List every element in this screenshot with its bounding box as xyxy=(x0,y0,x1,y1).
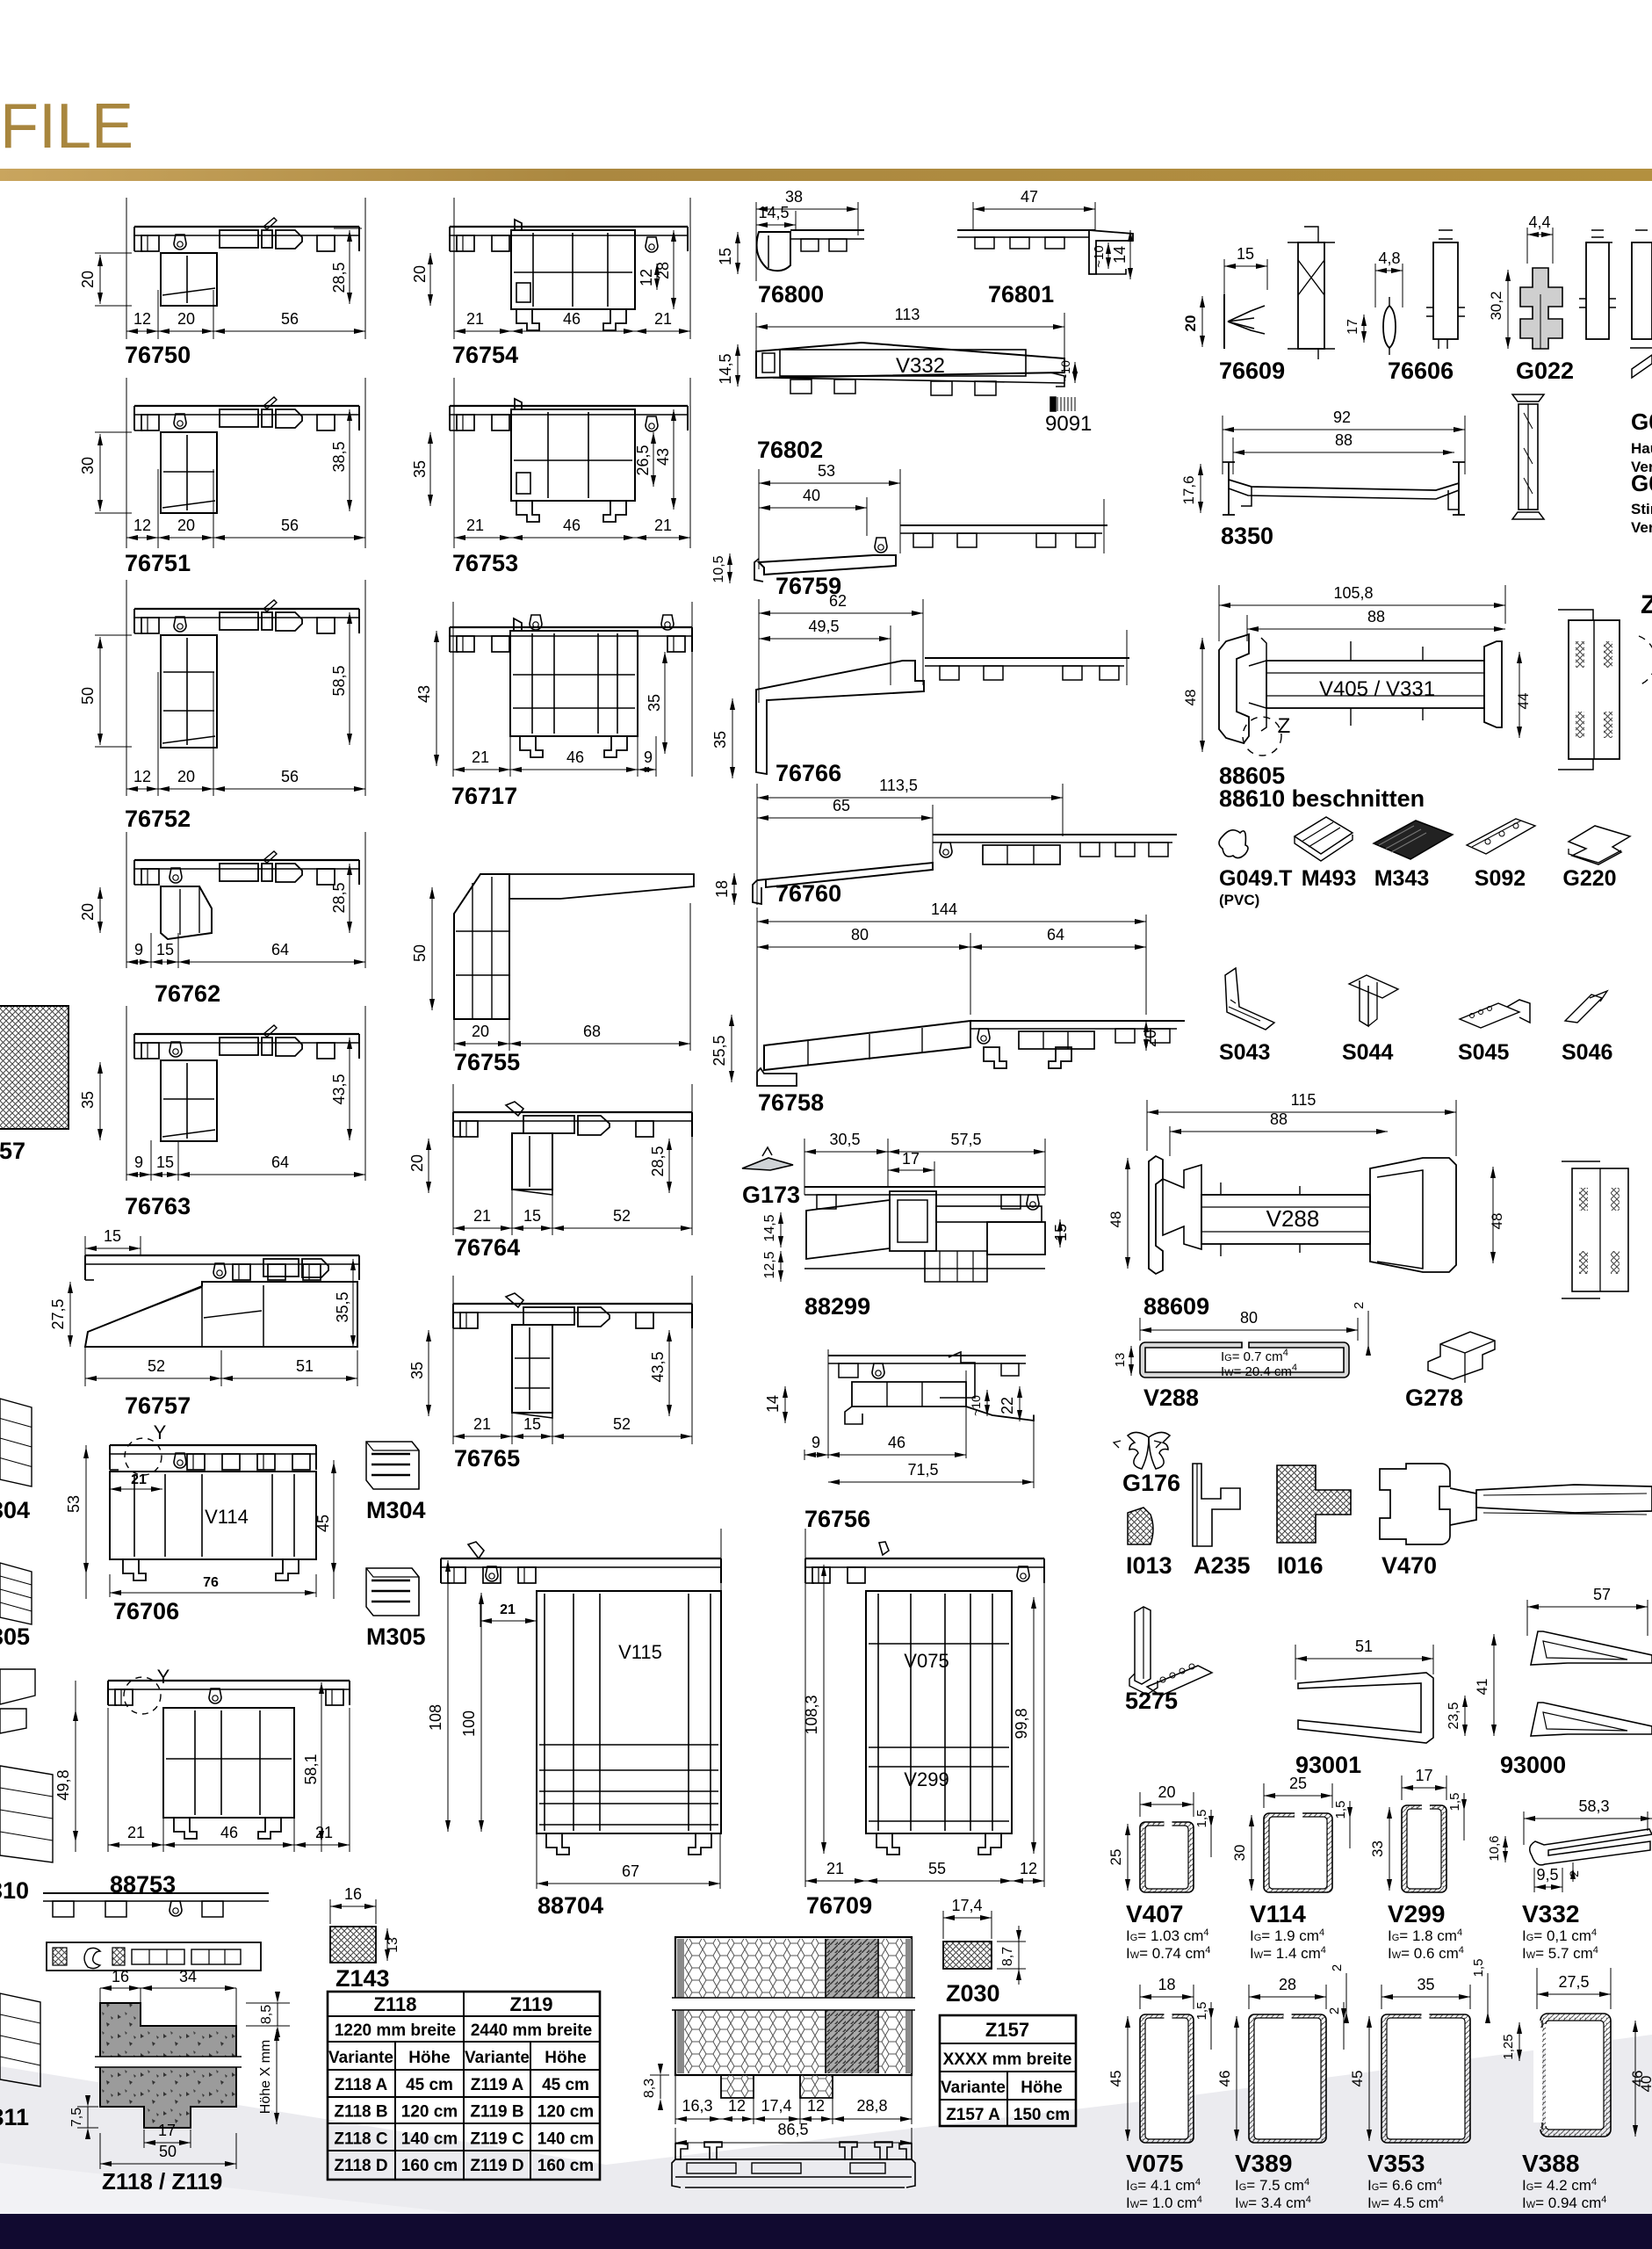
svg-text:105,8: 105,8 xyxy=(1333,584,1373,602)
svg-text:58,1: 58,1 xyxy=(302,1754,320,1784)
svg-text:I013: I013 xyxy=(1126,1552,1172,1579)
svg-text:5275: 5275 xyxy=(1125,1688,1178,1714)
svg-text:17: 17 xyxy=(902,1150,920,1168)
svg-text:21: 21 xyxy=(654,310,672,328)
svg-text:21: 21 xyxy=(500,1602,516,1617)
svg-text:53: 53 xyxy=(65,1495,83,1513)
svg-text:140 cm: 140 cm xyxy=(401,2130,458,2148)
svg-text:25: 25 xyxy=(1289,1775,1307,1792)
svg-text:20: 20 xyxy=(177,517,195,534)
svg-text:86,5: 86,5 xyxy=(777,2121,808,2138)
svg-text:17: 17 xyxy=(158,2122,176,2139)
svg-text:28,5: 28,5 xyxy=(330,882,348,913)
svg-text:7,5: 7,5 xyxy=(69,2108,84,2127)
svg-text:Höhe: Höhe xyxy=(1021,2079,1063,2097)
svg-text:8310: 8310 xyxy=(0,1877,29,1904)
svg-text:Höhe: Höhe xyxy=(545,2049,587,2067)
svg-text:76751: 76751 xyxy=(125,550,191,576)
svg-text:V299: V299 xyxy=(1388,1900,1445,1927)
svg-text:M305: M305 xyxy=(366,1623,426,1650)
svg-text:14: 14 xyxy=(1111,246,1129,264)
svg-text:IG= 1.9 cm4: IG= 1.9 cm4 xyxy=(1250,1927,1324,1944)
svg-text:V389: V389 xyxy=(1235,2150,1292,2177)
svg-text:144: 144 xyxy=(931,900,957,918)
svg-text:V288: V288 xyxy=(1266,1205,1320,1232)
svg-text:43: 43 xyxy=(654,448,672,466)
svg-text:76766: 76766 xyxy=(776,760,841,786)
svg-text:50: 50 xyxy=(79,687,97,705)
svg-text:52: 52 xyxy=(148,1357,165,1375)
svg-text:41: 41 xyxy=(1474,1679,1490,1696)
svg-text:44: 44 xyxy=(1515,693,1532,710)
svg-text:V470: V470 xyxy=(1381,1552,1437,1579)
svg-text:Z030: Z030 xyxy=(946,1980,1000,2007)
svg-text:14: 14 xyxy=(764,1395,782,1413)
svg-text:45 cm: 45 cm xyxy=(542,2076,589,2094)
svg-text:9: 9 xyxy=(134,941,143,958)
svg-text:113: 113 xyxy=(895,306,920,323)
svg-text:Z119 B: Z119 B xyxy=(470,2103,523,2122)
svg-text:88704: 88704 xyxy=(537,1892,603,1919)
svg-text:49,5: 49,5 xyxy=(808,618,839,635)
svg-text:27,5: 27,5 xyxy=(1558,1973,1589,1991)
svg-text:33: 33 xyxy=(1369,1840,1386,1857)
svg-text:46: 46 xyxy=(566,748,584,766)
svg-text:Z118 A: Z118 A xyxy=(335,2076,388,2094)
svg-text:76606: 76606 xyxy=(1388,358,1454,384)
svg-text:35: 35 xyxy=(408,1362,426,1379)
svg-text:Z119 D: Z119 D xyxy=(470,2157,523,2175)
svg-text:Z118 / Z119: Z118 / Z119 xyxy=(102,2168,222,2195)
svg-text:21: 21 xyxy=(473,1207,491,1225)
svg-text:48: 48 xyxy=(1182,690,1199,706)
svg-text:12: 12 xyxy=(133,768,151,785)
svg-text:80: 80 xyxy=(851,926,869,944)
svg-text:58,3: 58,3 xyxy=(1578,1797,1609,1815)
svg-text:55: 55 xyxy=(928,1860,946,1877)
svg-text:43,5: 43,5 xyxy=(330,1074,348,1104)
svg-text:27,5: 27,5 xyxy=(49,1298,67,1329)
svg-text:I016: I016 xyxy=(1277,1552,1324,1579)
svg-text:17: 17 xyxy=(1415,1767,1432,1784)
svg-text:V353: V353 xyxy=(1367,2150,1425,2177)
svg-text:V114: V114 xyxy=(205,1506,249,1528)
svg-text:Z143: Z143 xyxy=(335,1965,390,1992)
svg-text:76757: 76757 xyxy=(125,1392,191,1419)
svg-text:34: 34 xyxy=(179,1968,197,1985)
svg-text:Z119 A: Z119 A xyxy=(471,2076,524,2094)
svg-text:21: 21 xyxy=(466,517,484,534)
svg-text:71,5: 71,5 xyxy=(907,1461,938,1479)
svg-text:Z: Z xyxy=(1278,714,1291,738)
svg-text:17,6: 17,6 xyxy=(1180,475,1197,504)
svg-text:9: 9 xyxy=(812,1434,820,1451)
svg-text:76609: 76609 xyxy=(1219,358,1285,384)
svg-text:45: 45 xyxy=(1349,2071,1366,2087)
svg-text:93000: 93000 xyxy=(1500,1752,1566,1778)
svg-text:52: 52 xyxy=(613,1207,631,1225)
svg-text:43,5: 43,5 xyxy=(649,1351,667,1382)
svg-text:XXXX mm breite: XXXX mm breite xyxy=(943,2050,1072,2069)
svg-text:8311: 8311 xyxy=(0,2104,29,2130)
svg-text:76801: 76801 xyxy=(988,281,1054,307)
svg-text:100: 100 xyxy=(460,1710,478,1737)
svg-text:G173: G173 xyxy=(742,1182,800,1208)
svg-text:IW= 0.94 cm4: IW= 0.94 cm4 xyxy=(1522,2195,1606,2211)
svg-text:113,5: 113,5 xyxy=(879,777,918,794)
svg-text:35: 35 xyxy=(1417,1976,1434,1993)
svg-text:23,5: 23,5 xyxy=(1446,1702,1461,1729)
svg-text:20: 20 xyxy=(408,1154,426,1172)
svg-text:76709: 76709 xyxy=(806,1892,872,1919)
svg-text:21: 21 xyxy=(131,1472,147,1487)
svg-text:IG= 4.2 cm4: IG= 4.2 cm4 xyxy=(1522,2177,1597,2194)
svg-text:4,4: 4,4 xyxy=(1528,213,1550,231)
svg-text:64: 64 xyxy=(1047,926,1064,944)
svg-text:88: 88 xyxy=(1367,608,1385,626)
svg-text:30,5: 30,5 xyxy=(829,1131,860,1148)
svg-text:21: 21 xyxy=(127,1824,145,1841)
svg-text:28: 28 xyxy=(1279,1976,1296,1993)
svg-text:35: 35 xyxy=(646,694,663,712)
svg-text:2: 2 xyxy=(1327,2007,1342,2014)
svg-text:I057: I057 xyxy=(0,1138,25,1164)
svg-text:21: 21 xyxy=(472,748,489,766)
svg-text:M343: M343 xyxy=(1374,866,1430,891)
svg-text:V388: V388 xyxy=(1522,2150,1579,2177)
svg-text:Z157: Z157 xyxy=(985,2019,1029,2041)
svg-text:14,5: 14,5 xyxy=(717,353,734,384)
svg-text:21: 21 xyxy=(654,517,672,534)
svg-text:22: 22 xyxy=(999,1397,1016,1414)
svg-text:8350: 8350 xyxy=(1221,523,1273,549)
svg-text:V288: V288 xyxy=(1143,1385,1199,1411)
svg-text:56: 56 xyxy=(281,310,299,328)
svg-text:V075: V075 xyxy=(904,1650,949,1672)
svg-text:G278: G278 xyxy=(1405,1385,1463,1411)
svg-text:S092: S092 xyxy=(1475,866,1526,891)
svg-text:46: 46 xyxy=(220,1824,238,1841)
svg-text:12: 12 xyxy=(638,269,655,286)
svg-text:~10: ~10 xyxy=(969,1395,983,1416)
svg-text:M304: M304 xyxy=(0,1497,30,1523)
svg-text:18: 18 xyxy=(713,880,731,898)
svg-text:Z119 C: Z119 C xyxy=(470,2130,524,2148)
svg-text:1,5: 1,5 xyxy=(1333,1801,1348,1819)
svg-text:35: 35 xyxy=(79,1091,97,1109)
svg-text:25: 25 xyxy=(1107,1849,1124,1866)
svg-text:9,5: 9,5 xyxy=(1536,1866,1558,1884)
svg-text:150 cm: 150 cm xyxy=(1014,2106,1070,2124)
svg-text:49,8: 49,8 xyxy=(54,1769,72,1800)
svg-text:76763: 76763 xyxy=(125,1193,191,1219)
svg-text:IG= 7.5 cm4: IG= 7.5 cm4 xyxy=(1235,2177,1309,2194)
svg-text:~10: ~10 xyxy=(1058,360,1072,381)
svg-text:108,3: 108,3 xyxy=(803,1695,820,1734)
svg-text:64: 64 xyxy=(271,941,289,958)
svg-text:Z118: Z118 xyxy=(374,1993,417,2015)
svg-text:140 cm: 140 cm xyxy=(537,2130,594,2148)
svg-text:160 cm: 160 cm xyxy=(537,2157,594,2175)
svg-text:50: 50 xyxy=(159,2143,177,2160)
svg-text:62: 62 xyxy=(829,592,847,610)
svg-text:18: 18 xyxy=(1158,1976,1175,1993)
svg-text:15: 15 xyxy=(717,248,734,265)
svg-text:52: 52 xyxy=(613,1415,631,1433)
svg-text:15: 15 xyxy=(523,1415,541,1433)
svg-text:20: 20 xyxy=(79,271,97,288)
svg-text:68: 68 xyxy=(583,1023,601,1040)
svg-text:57,5: 57,5 xyxy=(950,1131,981,1148)
svg-text:67: 67 xyxy=(622,1862,639,1880)
svg-text:76765: 76765 xyxy=(454,1445,520,1472)
svg-text:53: 53 xyxy=(818,462,835,480)
svg-text:15: 15 xyxy=(1237,245,1254,263)
svg-text:Y: Y xyxy=(157,1666,170,1688)
svg-text:13: 13 xyxy=(1113,1353,1128,1368)
svg-text:Variante: Variante xyxy=(465,2049,530,2067)
svg-text:76800: 76800 xyxy=(758,281,824,307)
svg-text:76755: 76755 xyxy=(454,1049,520,1075)
svg-text:Verb: Verb xyxy=(1631,519,1652,536)
svg-text:1,5: 1,5 xyxy=(1194,1810,1209,1828)
svg-text:G022: G022 xyxy=(1516,358,1574,384)
svg-text:Z157 A: Z157 A xyxy=(946,2106,1000,2124)
svg-text:108: 108 xyxy=(427,1704,444,1731)
svg-text:21: 21 xyxy=(466,310,484,328)
svg-text:30,2: 30,2 xyxy=(1488,291,1504,320)
svg-text:17,4: 17,4 xyxy=(761,2097,791,2115)
svg-text:88: 88 xyxy=(1335,431,1353,449)
svg-text:9: 9 xyxy=(644,748,653,766)
svg-text:16: 16 xyxy=(112,1968,129,1985)
svg-text:21: 21 xyxy=(826,1860,844,1877)
svg-text:88: 88 xyxy=(1270,1110,1288,1128)
svg-text:Y: Y xyxy=(154,1421,167,1443)
svg-text:V407: V407 xyxy=(1126,1900,1183,1927)
svg-text:76762: 76762 xyxy=(155,980,220,1007)
svg-text:Z118 C: Z118 C xyxy=(334,2130,388,2148)
svg-text:G0: G0 xyxy=(1631,470,1652,496)
svg-text:Z119: Z119 xyxy=(510,1993,553,2015)
svg-text:S044: S044 xyxy=(1342,1040,1393,1065)
svg-text:38: 38 xyxy=(785,188,803,206)
svg-text:80: 80 xyxy=(1240,1309,1258,1327)
svg-text:V332: V332 xyxy=(896,354,945,378)
svg-text:10,6: 10,6 xyxy=(1487,1835,1502,1861)
svg-text:12: 12 xyxy=(1020,1860,1037,1877)
svg-text:30: 30 xyxy=(1231,1845,1248,1862)
svg-text:Z118 B: Z118 B xyxy=(334,2103,387,2122)
svg-text:76764: 76764 xyxy=(454,1234,520,1261)
svg-text:20: 20 xyxy=(472,1023,489,1040)
svg-text:15: 15 xyxy=(156,941,174,958)
svg-text:G049.T: G049.T xyxy=(1219,866,1292,891)
svg-text:IG= 1.03 cm4: IG= 1.03 cm4 xyxy=(1126,1927,1209,1944)
svg-text:76754: 76754 xyxy=(452,342,518,368)
svg-text:12,5: 12,5 xyxy=(762,1251,777,1278)
svg-text:(PVC): (PVC) xyxy=(1219,892,1259,908)
svg-text:1220 mm breite: 1220 mm breite xyxy=(335,2021,456,2040)
svg-text:8,7: 8,7 xyxy=(1000,1947,1015,1966)
svg-text:16,3: 16,3 xyxy=(682,2097,712,2115)
svg-text:45: 45 xyxy=(314,1515,332,1532)
svg-text:17,4: 17,4 xyxy=(951,1897,982,1914)
svg-text:20: 20 xyxy=(411,265,429,283)
svg-text:14,5: 14,5 xyxy=(762,1214,777,1241)
svg-text:Variante: Variante xyxy=(328,2049,393,2067)
svg-text:57: 57 xyxy=(1593,1586,1611,1603)
svg-text:8,5: 8,5 xyxy=(259,2005,274,2024)
svg-text:9091: 9091 xyxy=(1045,412,1092,436)
svg-text:51: 51 xyxy=(296,1357,314,1375)
svg-text:IW= 0.74 cm4: IW= 0.74 cm4 xyxy=(1126,1945,1210,1962)
svg-text:76760: 76760 xyxy=(776,880,841,907)
svg-text:21: 21 xyxy=(473,1415,491,1433)
svg-text:FILE: FILE xyxy=(0,91,133,162)
svg-text:V075: V075 xyxy=(1126,2150,1183,2177)
svg-text:76756: 76756 xyxy=(804,1506,870,1532)
svg-text:14,5: 14,5 xyxy=(758,204,789,221)
svg-text:43: 43 xyxy=(415,685,433,703)
svg-text:76753: 76753 xyxy=(452,550,518,576)
svg-text:1,5: 1,5 xyxy=(1471,1959,1486,1978)
svg-text:35,5: 35,5 xyxy=(334,1291,351,1322)
svg-text:IG= 0,1 cm4: IG= 0,1 cm4 xyxy=(1522,1927,1597,1944)
svg-text:28,5: 28,5 xyxy=(330,262,348,293)
svg-text:9: 9 xyxy=(134,1153,143,1171)
svg-text:Hau: Hau xyxy=(1631,440,1652,457)
svg-text:Höhe X mm: Höhe X mm xyxy=(258,2040,273,2114)
svg-text:20: 20 xyxy=(177,768,195,785)
svg-text:51: 51 xyxy=(1355,1638,1373,1655)
svg-text:25,5: 25,5 xyxy=(711,1035,728,1066)
svg-text:12: 12 xyxy=(807,2097,825,2115)
svg-text:M305: M305 xyxy=(0,1623,30,1650)
svg-text:46: 46 xyxy=(1216,2071,1233,2087)
svg-text:28: 28 xyxy=(654,262,672,279)
svg-text:G220: G220 xyxy=(1562,866,1616,891)
svg-text:28,8: 28,8 xyxy=(856,2097,887,2115)
svg-text:40: 40 xyxy=(803,487,820,504)
svg-text:20: 20 xyxy=(177,310,195,328)
svg-text:20: 20 xyxy=(1142,1030,1159,1047)
svg-text:V332: V332 xyxy=(1522,1900,1579,1927)
svg-text:M493: M493 xyxy=(1302,866,1357,891)
svg-text:12: 12 xyxy=(728,2097,746,2115)
svg-text:38,5: 38,5 xyxy=(330,441,348,472)
svg-text:~10: ~10 xyxy=(1092,245,1107,267)
svg-text:G0: G0 xyxy=(1631,409,1652,435)
svg-text:160 cm: 160 cm xyxy=(401,2157,458,2175)
svg-text:15: 15 xyxy=(156,1153,174,1171)
svg-text:46: 46 xyxy=(888,1434,905,1451)
svg-text:35: 35 xyxy=(411,460,429,478)
svg-text:8,3: 8,3 xyxy=(642,2079,657,2098)
svg-text:76706: 76706 xyxy=(113,1598,179,1624)
svg-text:M304: M304 xyxy=(366,1497,426,1523)
svg-text:17: 17 xyxy=(1345,319,1360,335)
svg-text:12: 12 xyxy=(133,310,151,328)
svg-text:IG= 4.1 cm4: IG= 4.1 cm4 xyxy=(1126,2177,1201,2194)
svg-text:Z118 D: Z118 D xyxy=(334,2157,387,2175)
svg-text:76750: 76750 xyxy=(125,342,191,368)
svg-text:76802: 76802 xyxy=(757,437,823,463)
svg-text:46: 46 xyxy=(563,517,581,534)
svg-text:99,8: 99,8 xyxy=(1013,1708,1030,1739)
svg-text:15: 15 xyxy=(104,1227,121,1245)
svg-text:S043: S043 xyxy=(1219,1040,1270,1065)
svg-text:2: 2 xyxy=(1352,1302,1367,1309)
svg-text:40: 40 xyxy=(1638,2076,1652,2093)
svg-text:76: 76 xyxy=(203,1575,219,1590)
svg-text:88299: 88299 xyxy=(804,1293,870,1320)
svg-text:56: 56 xyxy=(281,768,299,785)
svg-text:45 cm: 45 cm xyxy=(406,2076,453,2094)
svg-text:88609: 88609 xyxy=(1143,1293,1209,1320)
svg-text:120 cm: 120 cm xyxy=(537,2103,594,2122)
svg-text:V299: V299 xyxy=(904,1768,949,1790)
svg-text:48: 48 xyxy=(1489,1213,1505,1230)
svg-text:28,5: 28,5 xyxy=(649,1146,667,1176)
svg-text:V405 / V331: V405 / V331 xyxy=(1319,677,1435,701)
svg-text:76717: 76717 xyxy=(451,783,517,809)
svg-text:47: 47 xyxy=(1021,188,1038,206)
svg-text:20: 20 xyxy=(79,903,97,921)
svg-text:13: 13 xyxy=(386,1937,400,1953)
svg-text:G176: G176 xyxy=(1122,1470,1180,1496)
svg-text:56: 56 xyxy=(281,517,299,534)
svg-text:A235: A235 xyxy=(1194,1552,1251,1579)
svg-text:92: 92 xyxy=(1333,409,1351,426)
svg-text:2: 2 xyxy=(1330,1964,1345,1971)
svg-text:26,5: 26,5 xyxy=(634,445,652,475)
svg-text:65: 65 xyxy=(833,797,850,814)
svg-text:2440 mm breite: 2440 mm breite xyxy=(471,2021,592,2040)
svg-text:4,8: 4,8 xyxy=(1378,249,1400,267)
svg-text:1,5: 1,5 xyxy=(1194,2002,1209,2021)
svg-text:115: 115 xyxy=(1291,1091,1317,1109)
svg-text:10,5: 10,5 xyxy=(711,555,726,582)
svg-text:IG= 6.6 cm4: IG= 6.6 cm4 xyxy=(1367,2177,1442,2194)
svg-text:S046: S046 xyxy=(1562,1040,1612,1065)
svg-text:76752: 76752 xyxy=(125,806,191,832)
svg-text:V114: V114 xyxy=(1250,1900,1306,1927)
svg-text:S045: S045 xyxy=(1458,1040,1509,1065)
svg-text:21: 21 xyxy=(315,1824,333,1841)
svg-text:15: 15 xyxy=(523,1207,541,1225)
svg-text:15: 15 xyxy=(1052,1224,1070,1241)
svg-text:Stir: Stir xyxy=(1631,501,1652,517)
svg-text:Höhe: Höhe xyxy=(408,2049,451,2067)
svg-text:Z: Z xyxy=(1641,590,1652,619)
svg-text:Variante: Variante xyxy=(941,2079,1006,2097)
svg-text:76758: 76758 xyxy=(758,1089,824,1116)
svg-text:IG= 1.8 cm4: IG= 1.8 cm4 xyxy=(1388,1927,1462,1944)
svg-text:58,5: 58,5 xyxy=(330,665,348,696)
svg-text:V115: V115 xyxy=(618,1641,662,1663)
svg-text:30: 30 xyxy=(79,457,97,474)
svg-text:12: 12 xyxy=(133,517,151,534)
svg-text:35: 35 xyxy=(711,731,729,748)
svg-text:120 cm: 120 cm xyxy=(401,2103,458,2122)
svg-text:2: 2 xyxy=(1567,1870,1581,1877)
svg-text:46: 46 xyxy=(563,310,581,328)
svg-text:45: 45 xyxy=(1107,2071,1124,2087)
svg-text:20: 20 xyxy=(1182,315,1199,332)
svg-text:1,25: 1,25 xyxy=(1501,2034,1516,2059)
svg-text:48: 48 xyxy=(1107,1211,1124,1228)
